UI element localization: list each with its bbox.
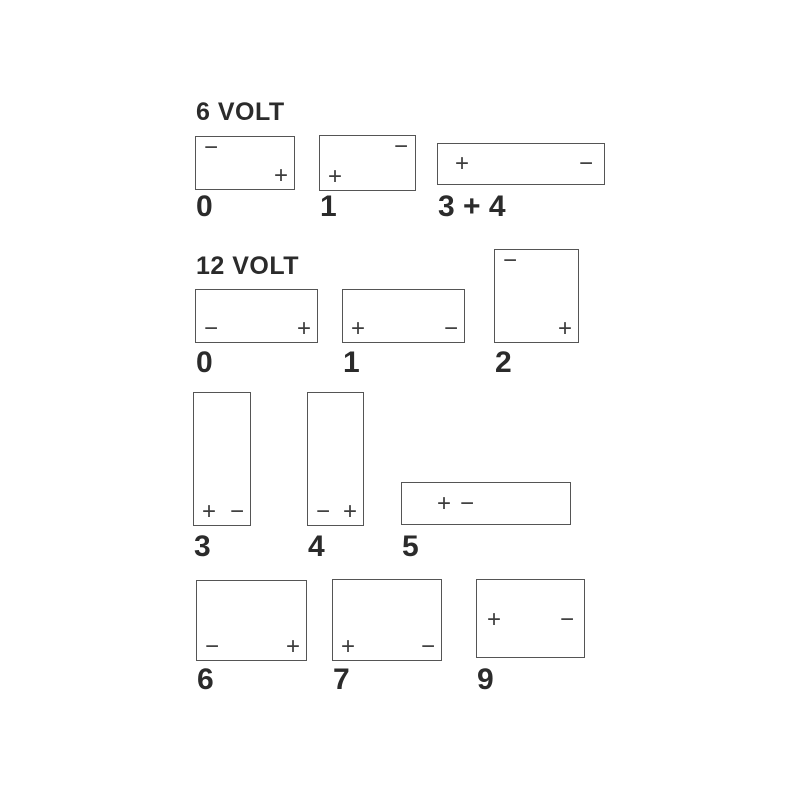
battery-box-12v-7: +−: [332, 579, 442, 661]
battery-box-12v-4: −+: [307, 392, 364, 526]
minus-terminal-icon: −: [204, 317, 218, 341]
plus-terminal-icon: +: [437, 492, 451, 516]
battery-box-12v-6: −+: [196, 580, 307, 661]
plus-terminal-icon: +: [274, 164, 288, 188]
battery-box-12v-2: −+: [494, 249, 579, 343]
battery-box-12v-5: +−: [401, 482, 571, 525]
plus-terminal-icon: +: [343, 500, 357, 524]
minus-terminal-icon: −: [503, 249, 517, 273]
layout-code-label-6v-3+4: 3 + 4: [438, 192, 506, 222]
layout-code-label-12v-3: 3: [194, 532, 211, 562]
plus-terminal-icon: +: [328, 165, 342, 189]
plus-terminal-icon: +: [286, 635, 300, 659]
layout-code-label-6v-0: 0: [196, 192, 213, 222]
minus-terminal-icon: −: [204, 136, 218, 160]
layout-code-label-12v-0: 0: [196, 348, 213, 378]
layout-code-label-12v-9: 9: [477, 665, 494, 695]
layout-code-label-6v-1: 1: [320, 192, 337, 222]
layout-code-label-12v-5: 5: [402, 532, 419, 562]
minus-terminal-icon: −: [205, 635, 219, 659]
layout-code-label-12v-2: 2: [495, 348, 512, 378]
section-title-12-volt: 12 VOLT: [196, 254, 299, 279]
minus-terminal-icon: −: [230, 500, 244, 524]
minus-terminal-icon: −: [444, 317, 458, 341]
layout-code-label-12v-4: 4: [308, 532, 325, 562]
plus-terminal-icon: +: [202, 500, 216, 524]
battery-box-12v-9: +−: [476, 579, 585, 658]
plus-terminal-icon: +: [487, 608, 501, 632]
plus-terminal-icon: +: [297, 317, 311, 341]
battery-box-6v-3+4: +−: [437, 143, 605, 185]
plus-terminal-icon: +: [455, 152, 469, 176]
battery-box-12v-1: +−: [342, 289, 465, 343]
battery-box-12v-0: −+: [195, 289, 318, 343]
battery-box-6v-0: −+: [195, 136, 295, 190]
plus-terminal-icon: +: [558, 317, 572, 341]
battery-box-6v-1: −+: [319, 135, 416, 191]
minus-terminal-icon: −: [421, 635, 435, 659]
plus-terminal-icon: +: [351, 317, 365, 341]
minus-terminal-icon: −: [394, 135, 408, 159]
minus-terminal-icon: −: [460, 492, 474, 516]
layout-code-label-12v-6: 6: [197, 665, 214, 695]
minus-terminal-icon: −: [316, 500, 330, 524]
layout-code-label-12v-1: 1: [343, 348, 360, 378]
layout-code-label-12v-7: 7: [333, 665, 350, 695]
battery-terminal-layout-diagram: 6 VOLT 12 VOLT −+0−+1+−3 + 4−+0+−1−+2+−3…: [0, 0, 800, 800]
battery-box-12v-3: +−: [193, 392, 251, 526]
section-title-6-volt: 6 VOLT: [196, 100, 285, 125]
minus-terminal-icon: −: [579, 152, 593, 176]
minus-terminal-icon: −: [560, 608, 574, 632]
plus-terminal-icon: +: [341, 635, 355, 659]
